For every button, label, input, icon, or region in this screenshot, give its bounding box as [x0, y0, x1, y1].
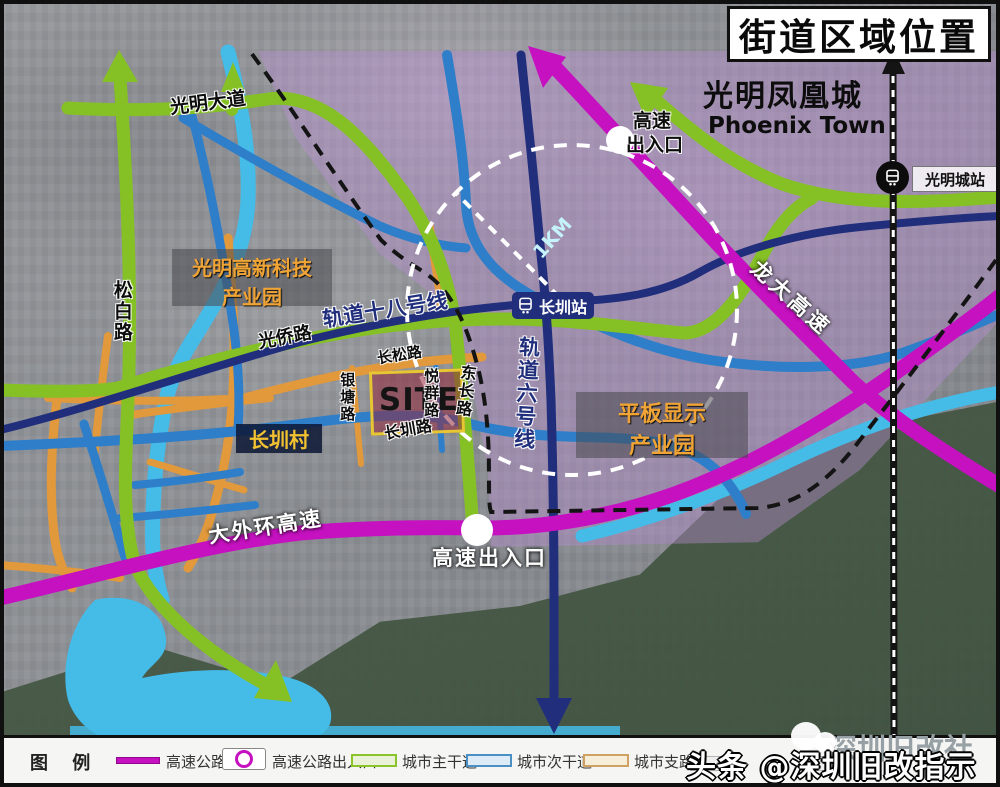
legend-label-secondary-road: 城市次干道 [517, 751, 592, 772]
changzhen-village-label: 长圳村 [236, 424, 322, 453]
legend-swatch-main-road [351, 754, 397, 767]
page-title: 街道区域位置 [727, 6, 991, 62]
exit-ring-icon [235, 750, 253, 768]
changzhen-station-label: 长圳站 [539, 294, 587, 318]
legend-label-branch-road: 城市支路 [634, 751, 694, 772]
label-exit-bottom: 高速出入口 [432, 546, 547, 570]
train-icon [883, 168, 902, 187]
legend-swatch-expressway [116, 757, 160, 764]
street-area-location-map: 街道区域位置 光明凤凰城 Phoenix Town 光明大道 松白路 轨道十八号… [0, 0, 1000, 787]
flatpanel-park-label: 平板显示 产业园 [576, 392, 748, 458]
phoenix-town-en: Phoenix Town [708, 113, 886, 139]
guangmingcheng-station-label: 光明城站 [912, 166, 998, 192]
legend-swatch-secondary-road [466, 754, 512, 767]
label-yuequn-road: 悦群路 [422, 368, 439, 419]
label-exit-top-line2: 出入口 [626, 135, 683, 157]
legend-swatch-branch-road [583, 754, 629, 767]
reservoir-water [65, 598, 331, 737]
label-yintang-road: 银塘路 [338, 372, 355, 423]
legend-title: 图 例 [30, 749, 99, 775]
hightech-park-line2: 产业园 [172, 281, 332, 310]
changzhen-station: 长圳站 [512, 292, 594, 319]
watermark-toutiao: 头条 @深圳旧改指示 [686, 742, 976, 786]
legend-label-expressway: 高速公路 [166, 751, 226, 772]
phoenix-town-cn: 光明凤凰城 [703, 80, 863, 115]
flatpanel-park-line2: 产业园 [576, 428, 748, 460]
label-songbai-road: 松白路 [110, 280, 132, 343]
flatpanel-park-line1: 平板显示 [576, 396, 748, 428]
label-exit-top-line1: 高速 [633, 111, 671, 133]
legend-swatch-exit [222, 748, 266, 770]
train-icon [516, 296, 535, 315]
guangmingcheng-station [876, 161, 909, 194]
expressway-exit-circle-bottom [461, 514, 493, 546]
hightech-park-line1: 光明高新科技 [172, 252, 332, 281]
hightech-park-label: 光明高新科技 产业园 [172, 249, 332, 306]
